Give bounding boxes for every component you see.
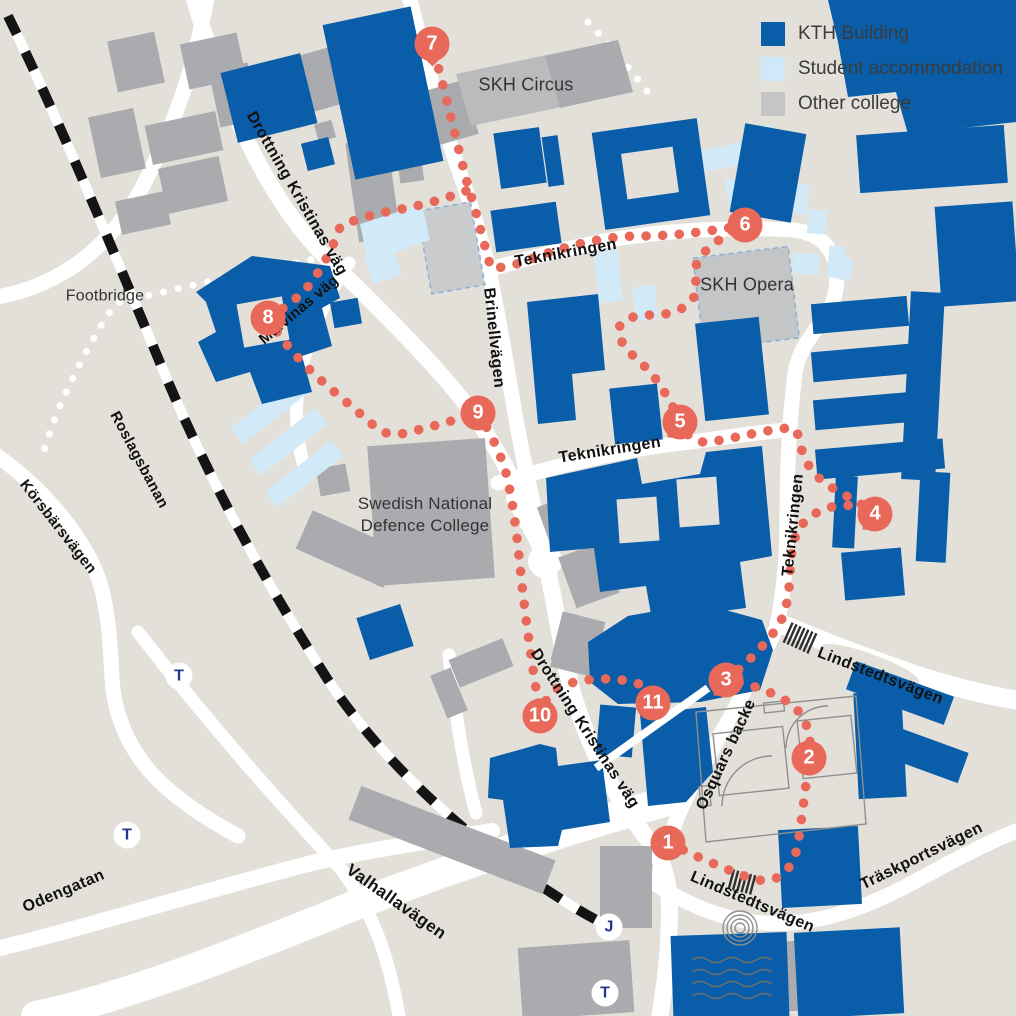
- legend-label-kth-building: KTH Building: [798, 23, 909, 45]
- campus-map: FootbridgeDrottning Kristinas vägMalvina…: [0, 0, 1016, 1016]
- map-legend: KTH Building Student accommodation Other…: [761, 22, 1003, 116]
- legend-item-other-college: Other college: [761, 92, 1003, 116]
- legend-label-other-college: Other college: [798, 93, 911, 115]
- legend-swatch-student-accommodation: [761, 57, 785, 81]
- legend-item-kth-building: KTH Building: [761, 22, 1003, 46]
- legend-swatch-other-college: [761, 92, 785, 116]
- legend-swatch-kth-building: [761, 22, 785, 46]
- legend-label-student-accommodation: Student accommodation: [798, 58, 1003, 80]
- legend-item-student-accommodation: Student accommodation: [761, 57, 1003, 81]
- map-graphics: [0, 0, 1016, 1016]
